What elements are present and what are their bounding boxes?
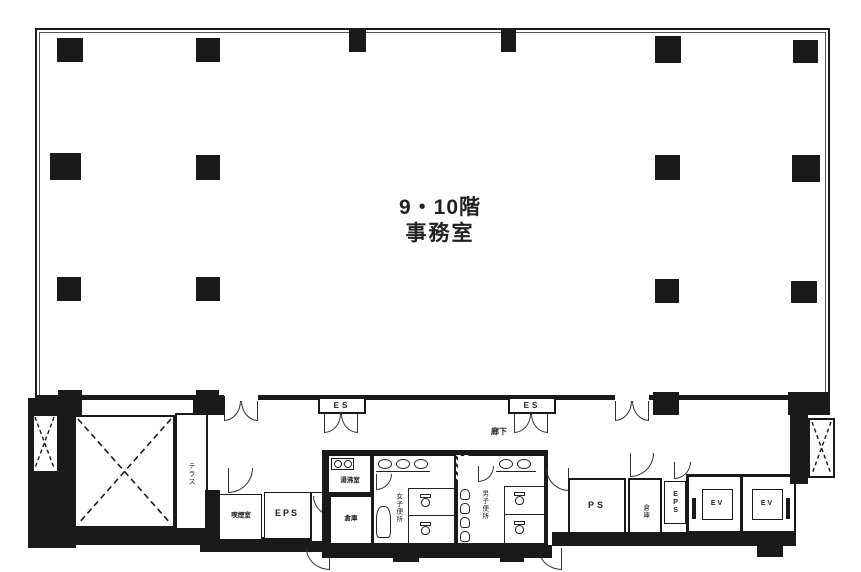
column — [196, 38, 220, 62]
sink-icon — [378, 459, 392, 469]
sink-icon — [517, 459, 531, 469]
column — [791, 281, 817, 303]
es-right-label: ES — [524, 401, 541, 410]
door-leaf — [546, 468, 569, 491]
wall-chunk — [205, 490, 220, 542]
floor-title-line2: 事務室 — [360, 222, 520, 246]
x-brace-icon — [34, 416, 55, 469]
door-leaf — [632, 401, 649, 421]
column — [349, 30, 366, 52]
door-leaf — [228, 468, 253, 493]
column — [196, 277, 220, 301]
elevator-2-label: EV — [753, 500, 782, 508]
door-leaf — [630, 453, 654, 477]
elevator-1-label: EV — [703, 500, 732, 508]
column — [655, 279, 679, 303]
wall-stub — [757, 543, 783, 557]
toilet-icon — [420, 494, 431, 508]
office-south-wall — [35, 395, 830, 400]
door-leaf — [615, 401, 632, 421]
storage-right-label: 倉庫 — [639, 495, 651, 527]
urinal-icon — [460, 531, 470, 542]
toilet-icon — [514, 492, 525, 506]
toilet-icon — [420, 522, 431, 536]
urinal-icon — [460, 489, 470, 500]
counter-line — [376, 471, 430, 472]
kitchenette-label: 湯沸室 — [330, 477, 370, 484]
corridor-label: 廊下 — [484, 427, 514, 436]
sink-icon — [499, 459, 513, 469]
womens-toilet-label: 女子便所 — [392, 483, 404, 533]
terrace-label: テラス — [184, 452, 198, 496]
column — [792, 155, 820, 182]
void-area — [74, 415, 175, 528]
door-leaf — [514, 414, 531, 433]
right-core-wall — [790, 396, 808, 484]
door-opening — [615, 394, 649, 401]
eps-right-label: EPS — [669, 485, 681, 521]
toilet-icon — [514, 521, 525, 535]
wall-chunk — [193, 396, 225, 415]
storage-left-label: 倉庫 — [333, 515, 369, 522]
stall-partition — [408, 515, 454, 516]
x-brace-icon — [810, 420, 833, 476]
column — [57, 277, 81, 301]
column — [50, 153, 81, 180]
right-shaft — [808, 418, 835, 478]
door-opening — [224, 394, 258, 401]
door-leaf — [531, 414, 548, 433]
column — [653, 392, 679, 415]
door-leaf — [341, 414, 358, 433]
vanity-icon — [376, 506, 391, 538]
urinal-icon — [460, 503, 470, 514]
left-shaft — [33, 415, 58, 472]
column — [501, 30, 516, 52]
door-leaf — [224, 401, 241, 421]
wall-stub — [500, 548, 524, 562]
floor-title-line1: 9・10階 — [360, 196, 520, 220]
column — [196, 155, 220, 180]
sink-icon — [414, 459, 428, 469]
es-box-left: ES — [318, 397, 366, 414]
door-leaf — [241, 401, 258, 421]
sink-icon — [344, 460, 352, 468]
door-leaf — [324, 414, 341, 433]
es-left-label: ES — [334, 401, 351, 410]
column — [655, 155, 680, 180]
floor-plan: 9・10階 事務室 ES ES 廊下 — [0, 0, 861, 572]
pipe-shaft-label: PS — [572, 500, 622, 510]
es-box-right: ES — [508, 397, 556, 414]
wall-stub — [393, 548, 419, 562]
mens-toilet-label: 男子便所 — [478, 480, 490, 530]
elevator-door-slot — [692, 498, 696, 519]
urinal-icon — [460, 517, 470, 528]
smoking-room-label: 喫煙室 — [221, 512, 261, 519]
stall-partition — [504, 514, 544, 515]
column — [655, 36, 681, 63]
sink-icon — [396, 459, 410, 469]
column — [793, 40, 818, 63]
sink-icon — [334, 460, 342, 468]
elevator-door-slot — [786, 498, 790, 519]
x-brace-icon — [76, 417, 173, 526]
eps-left-label: EPS — [266, 508, 308, 518]
column — [57, 38, 83, 62]
counter-line — [496, 471, 536, 472]
